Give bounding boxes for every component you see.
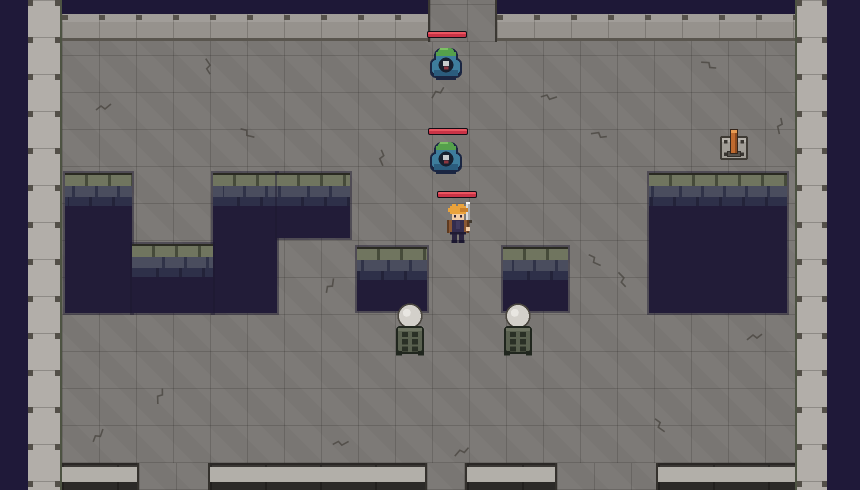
floor-crack (95, 102, 113, 114)
bottom-wall-segment (467, 463, 555, 490)
hero-icon (442, 202, 476, 246)
health-bar (428, 128, 468, 135)
brazier-icon (500, 302, 536, 358)
pit-brick-edge (65, 173, 132, 206)
right-wall-column (795, 0, 827, 490)
outside-void-left (0, 0, 28, 490)
top-void-strip (62, 0, 428, 14)
bottom-exit-corridor (425, 463, 467, 490)
pit (65, 173, 132, 313)
pit-brick-edge (357, 247, 427, 280)
pit-brick-edge (649, 173, 787, 206)
floor-crack (202, 56, 216, 75)
health-bar-fill (429, 129, 467, 134)
floor-crack (616, 270, 630, 289)
top-wall-ledge (62, 14, 428, 41)
pit (132, 244, 213, 313)
top-wall-ledge (497, 14, 795, 41)
left-wall-column (28, 0, 62, 490)
bottom-wall-segment (658, 463, 795, 490)
pit (649, 173, 787, 313)
health-bar-fill (428, 32, 466, 37)
bottom-exit-corridor (555, 463, 658, 490)
pit-brick-edge (213, 173, 277, 206)
outside-void-right (827, 0, 860, 490)
pit (213, 173, 277, 313)
bottom-exit-corridor (137, 463, 210, 490)
slime-icon (428, 138, 464, 176)
slime-icon (428, 44, 464, 82)
health-bar (427, 31, 467, 38)
pit-brick-edge (277, 173, 350, 206)
pit-brick-edge (132, 244, 213, 277)
pit-brick-edge (503, 247, 568, 280)
game-viewport[interactable] (0, 0, 860, 490)
health-bar (437, 191, 477, 198)
bottom-wall-segment (210, 463, 425, 490)
lever-icon (716, 128, 752, 164)
pit (277, 173, 350, 238)
bottom-wall-segment (62, 463, 137, 490)
health-bar-fill (438, 192, 476, 197)
brazier-icon (392, 302, 428, 358)
floor-crack (745, 330, 763, 342)
top-void-strip (497, 0, 795, 14)
